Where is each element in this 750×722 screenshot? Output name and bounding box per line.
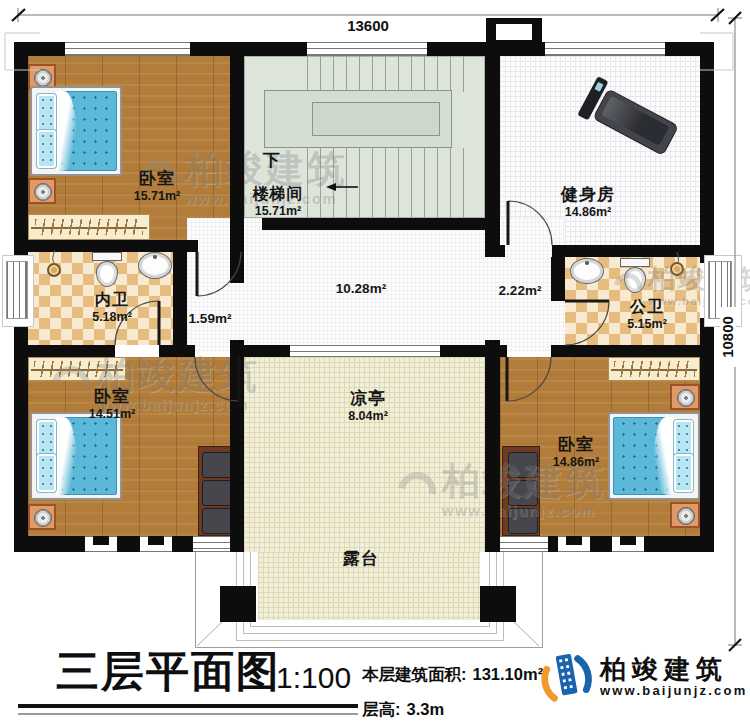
room-label-bedroom-br: 卧室 14.86m² (526, 434, 626, 471)
floor-height-row: 层高: 3.3m (362, 699, 444, 721)
room-label-gym: 健身房 14.86m² (538, 184, 638, 221)
hall-area-label: 2.22m² (490, 283, 550, 298)
drawing-title: 三层平面图 (56, 650, 281, 693)
brand-url: www.baijunjz.com (600, 683, 747, 698)
room-label-bedroom-bl: 卧室 14.51m² (62, 386, 162, 423)
drawing-scale: 1:100 (276, 663, 351, 693)
shower-hose-icon (53, 250, 679, 264)
dimension-label-top: 13600 (337, 18, 399, 34)
brand-logo-icon (538, 648, 596, 706)
room-label-bedroom-tl: 卧室 15.71m² (107, 168, 207, 205)
plan-linework (0, 0, 750, 722)
room-label-bath-inner: 内卫 5.18m² (62, 290, 162, 326)
door-leafs (159, 201, 609, 401)
room-label-terrace: 露台 (331, 548, 391, 569)
title-underline (18, 704, 358, 708)
room-label-bath-public: 公卫 5.15m² (597, 297, 697, 333)
stair-down-label: 下 (252, 150, 292, 171)
room-label-pavilion: 凉亭 8.04m² (318, 388, 418, 425)
hall-area-label: 10.28m² (321, 281, 401, 296)
floor-height-value: 3.3m (407, 700, 445, 719)
floor-height-label: 层高: (362, 699, 401, 721)
brand-name: 柏竣建筑 (600, 656, 747, 683)
hall-area-label: 1.59m² (180, 311, 240, 326)
doors (115, 201, 609, 401)
eave-outline (5, 33, 733, 70)
room-label-stairwell: 楼梯间 15.71m² (228, 184, 328, 220)
stair-down-arrow-icon (326, 183, 358, 191)
brand-logo: 柏竣建筑 www.baijunjz.com (538, 648, 747, 706)
dimension-label-right: 10800 (720, 307, 736, 367)
terrace-corner-lines (197, 622, 539, 646)
title-underline-thin (18, 713, 358, 715)
floor-area-value: 131.10m² (473, 665, 544, 684)
floor-area-label: 本层建筑面积: (362, 664, 467, 686)
floor-area-row: 本层建筑面积: 131.10m² (362, 664, 543, 686)
floor-plan-canvas: 柏竣建筑 www.baijunjz.com 柏竣建筑 www.baijunjz.… (0, 0, 750, 722)
